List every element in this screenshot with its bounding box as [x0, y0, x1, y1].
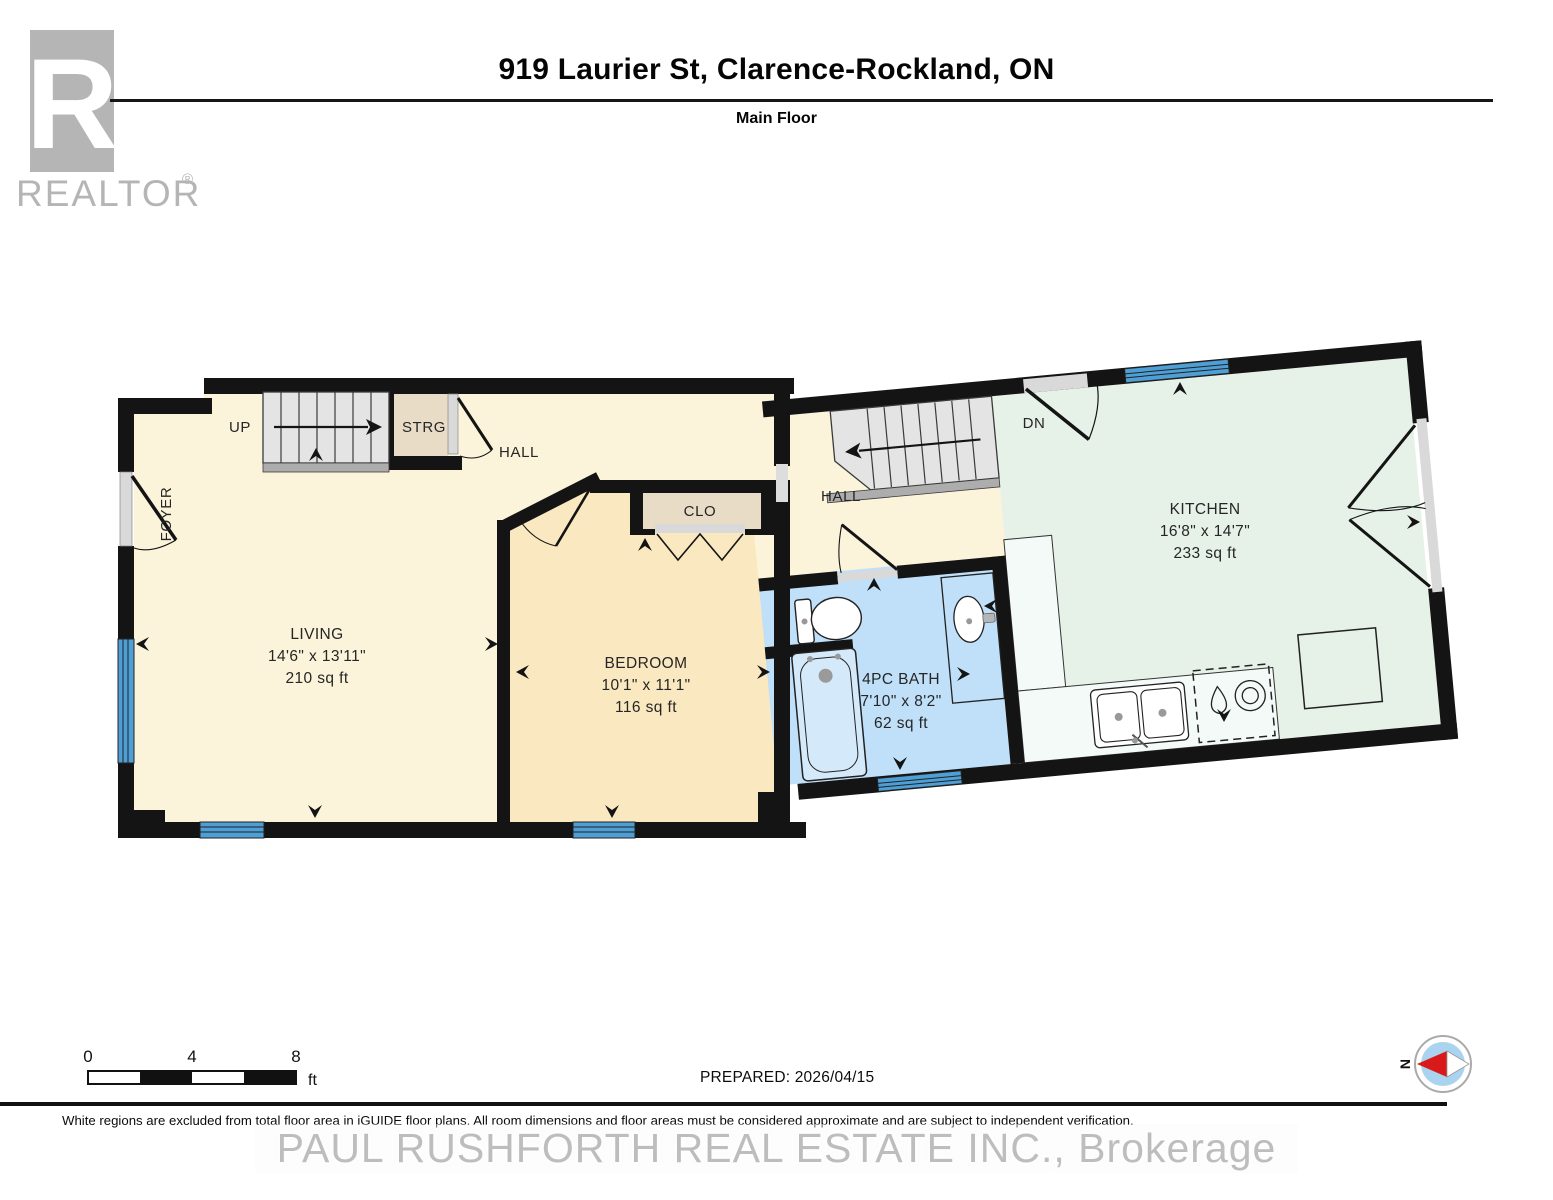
storage-label: STRG: [402, 419, 446, 436]
closet-label: CLO: [684, 503, 717, 520]
floor-plan: UP STRG HALL FOYER LIVING 14'6" x 13'11"…: [0, 0, 1553, 1200]
bedroom-bottom-window-icon: [573, 822, 635, 838]
bath-area: 62 sq ft: [874, 715, 928, 732]
stairs-up-icon: [263, 392, 389, 472]
living-side-window-icon: [118, 639, 134, 763]
living-label: LIVING: [290, 626, 343, 643]
living-bottom-window-icon: [200, 822, 264, 838]
bedroom-label: BEDROOM: [605, 655, 688, 672]
hall-left-label: HALL: [499, 444, 539, 461]
scale-unit: ft: [308, 1072, 317, 1089]
prepared-date: PREPARED: 2026/04/15: [700, 1069, 874, 1087]
living-dims: 14'6" x 13'11": [268, 648, 366, 665]
compass-north-label: N: [1397, 1059, 1413, 1069]
living-area: 210 sq ft: [285, 670, 348, 687]
scale-tick-0: 0: [83, 1047, 92, 1066]
right-wing: [742, 340, 1458, 801]
hall-passage-sill: [776, 464, 788, 502]
scale-tick-8: 8: [291, 1047, 300, 1066]
bedroom-area: 116 sq ft: [615, 699, 677, 716]
footer-divider: [0, 1102, 1447, 1106]
brokerage-watermark: PAUL RUSHFORTH REAL ESTATE INC., Brokera…: [255, 1124, 1299, 1173]
hall-right-label: HALL: [821, 488, 861, 505]
bedroom-dims: 10'1" x 11'1": [601, 677, 690, 694]
bathtub-icon: [791, 648, 867, 781]
kitchen-dims: 16'8" x 14'7": [1160, 523, 1250, 540]
closet-sill: [655, 524, 745, 533]
bath-dims: 7'10" x 8'2": [860, 693, 941, 710]
stairs-down-label: DN: [1023, 415, 1046, 432]
scale-tick-4: 4: [187, 1047, 196, 1066]
stairs-up-label: UP: [229, 419, 251, 436]
foyer-label: FOYER: [158, 487, 175, 542]
bath-label: 4PC BATH: [862, 671, 940, 688]
kitchen-area: 233 sq ft: [1173, 545, 1236, 562]
compass-icon: N: [1393, 1018, 1493, 1110]
floorplan-page: R REALTOR ® 919 Laurier St, Clarence-Roc…: [0, 0, 1553, 1200]
scale-bar: 0 4 8 ft: [70, 1040, 350, 1100]
kitchen-label: KITCHEN: [1170, 501, 1241, 518]
